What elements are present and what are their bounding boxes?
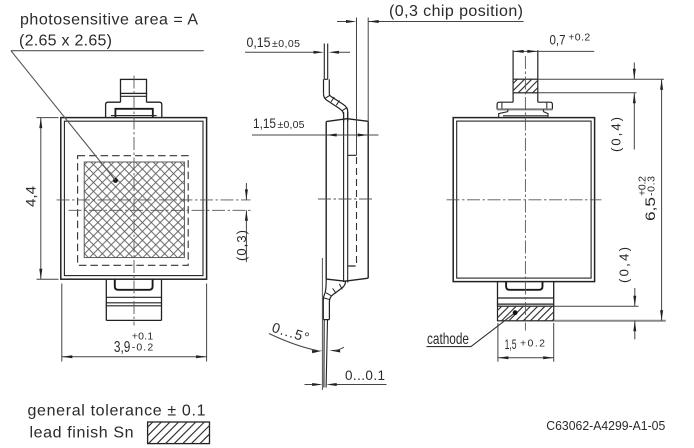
svg-text:3,9: 3,9 bbox=[114, 339, 131, 356]
svg-text:+0.2: +0.2 bbox=[520, 338, 545, 350]
svg-text:0,7: 0,7 bbox=[550, 31, 566, 47]
svg-text:(2.65 x 2.65): (2.65 x 2.65) bbox=[19, 33, 112, 50]
svg-text:1,5: 1,5 bbox=[505, 336, 517, 352]
svg-text:lead finish Sn: lead finish Sn bbox=[30, 425, 134, 442]
svg-text:±0,05: ±0,05 bbox=[272, 38, 300, 50]
svg-text:1,15: 1,15 bbox=[253, 116, 276, 131]
svg-text:0...0.1: 0...0.1 bbox=[345, 368, 385, 383]
svg-text:-0.2: -0.2 bbox=[132, 342, 154, 354]
svg-text:-0.3: -0.3 bbox=[646, 176, 658, 196]
svg-text:4,4: 4,4 bbox=[22, 186, 38, 207]
svg-text:photosensitive area = A: photosensitive area = A bbox=[20, 12, 198, 29]
svg-text:6,5: 6,5 bbox=[642, 197, 658, 221]
svg-text:C63062-A4299-A1-05: C63062-A4299-A1-05 bbox=[546, 418, 665, 433]
svg-text:0,15: 0,15 bbox=[247, 35, 271, 50]
svg-text:(0,3): (0,3) bbox=[234, 230, 249, 261]
svg-text:general tolerance ± 0.1: general tolerance ± 0.1 bbox=[28, 403, 206, 420]
svg-text:(0,3 chip position): (0,3 chip position) bbox=[389, 3, 523, 20]
svg-text:±0,05: ±0,05 bbox=[278, 119, 305, 131]
svg-text:+0.2: +0.2 bbox=[568, 31, 590, 43]
svg-text:cathode: cathode bbox=[427, 331, 469, 348]
